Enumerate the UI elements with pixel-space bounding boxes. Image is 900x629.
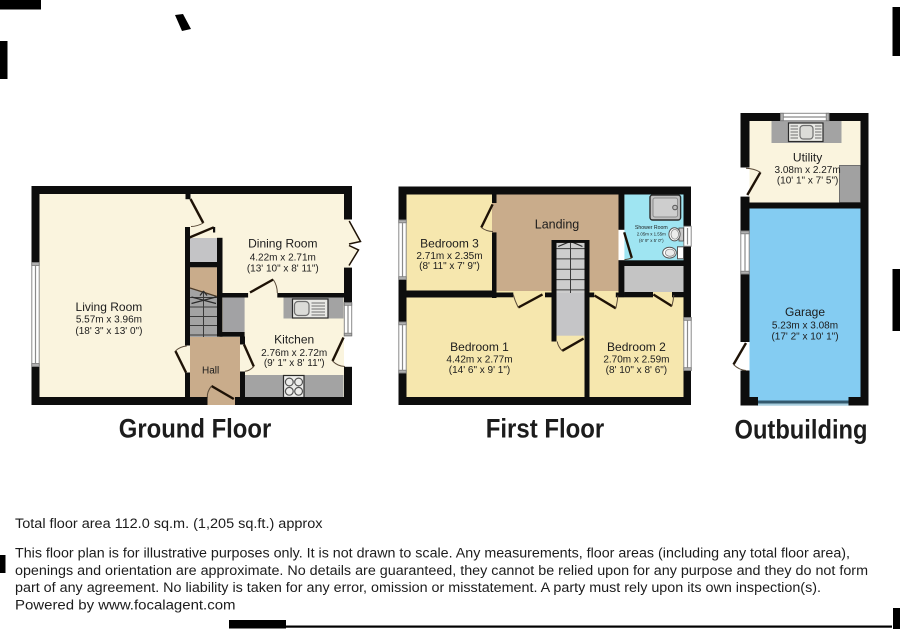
svg-text:5.57m x 3.96m: 5.57m x 3.96m — [76, 315, 142, 326]
svg-text:Kitchen: Kitchen — [274, 332, 314, 346]
svg-text:Ground Floor: Ground Floor — [119, 414, 272, 444]
svg-text:Outbuilding: Outbuilding — [735, 414, 868, 444]
svg-text:(8' 11" x 7' 9"): (8' 11" x 7' 9") — [419, 261, 480, 272]
svg-text:Powered by www.focalagent.com: Powered by www.focalagent.com — [15, 597, 236, 613]
svg-text:Living Room: Living Room — [76, 300, 143, 314]
svg-text:Utility: Utility — [793, 150, 822, 164]
svg-text:4.42m x 2.77m: 4.42m x 2.77m — [446, 355, 512, 366]
svg-text:(18' 3" x 13' 0"): (18' 3" x 13' 0") — [75, 326, 142, 337]
svg-text:5.23m x 3.08m: 5.23m x 3.08m — [772, 320, 838, 331]
svg-text:Bedroom 2: Bedroom 2 — [607, 340, 666, 354]
svg-text:This floor plan is for illustr: This floor plan is for illustrative purp… — [15, 546, 850, 562]
svg-text:(14' 6" x 9' 1"): (14' 6" x 9' 1") — [449, 365, 511, 376]
svg-text:First Floor: First Floor — [486, 414, 605, 444]
svg-text:(13' 10" x 8' 11"): (13' 10" x 8' 11") — [247, 263, 319, 274]
svg-text:Dining Room: Dining Room — [248, 237, 317, 251]
svg-text:Garage: Garage — [785, 305, 825, 319]
svg-text:Hall: Hall — [202, 366, 219, 377]
svg-text:4.22m x 2.71m: 4.22m x 2.71m — [250, 253, 316, 264]
svg-text:part of any agreement. No liab: part of any agreement. No liability is t… — [15, 580, 821, 596]
svg-text:(17' 2" x 10' 1"): (17' 2" x 10' 1") — [771, 331, 838, 342]
svg-text:2.70m x 2.59m: 2.70m x 2.59m — [603, 355, 669, 366]
svg-text:Landing: Landing — [535, 218, 580, 232]
svg-text:(10' 1" x 7' 5"): (10' 1" x 7' 5") — [777, 175, 839, 186]
svg-text:(9' 1" x 8' 11"): (9' 1" x 8' 11") — [264, 358, 325, 369]
svg-text:Total floor area 112.0 sq.m. (: Total floor area 112.0 sq.m. (1,205 sq.f… — [15, 516, 323, 532]
svg-text:2.05m x 1.55m: 2.05m x 1.55m — [637, 232, 666, 237]
svg-text:Bedroom 1: Bedroom 1 — [450, 340, 509, 354]
svg-text:(6' 9" x 5' 0"): (6' 9" x 5' 0") — [639, 238, 664, 243]
svg-text:Bedroom 3: Bedroom 3 — [420, 236, 479, 250]
svg-text:(8' 10" x 8' 6"): (8' 10" x 8' 6") — [606, 365, 668, 376]
svg-text:Shower Room: Shower Room — [635, 225, 668, 231]
svg-text:openings and orientation are a: openings and orientation are approximate… — [15, 563, 868, 579]
